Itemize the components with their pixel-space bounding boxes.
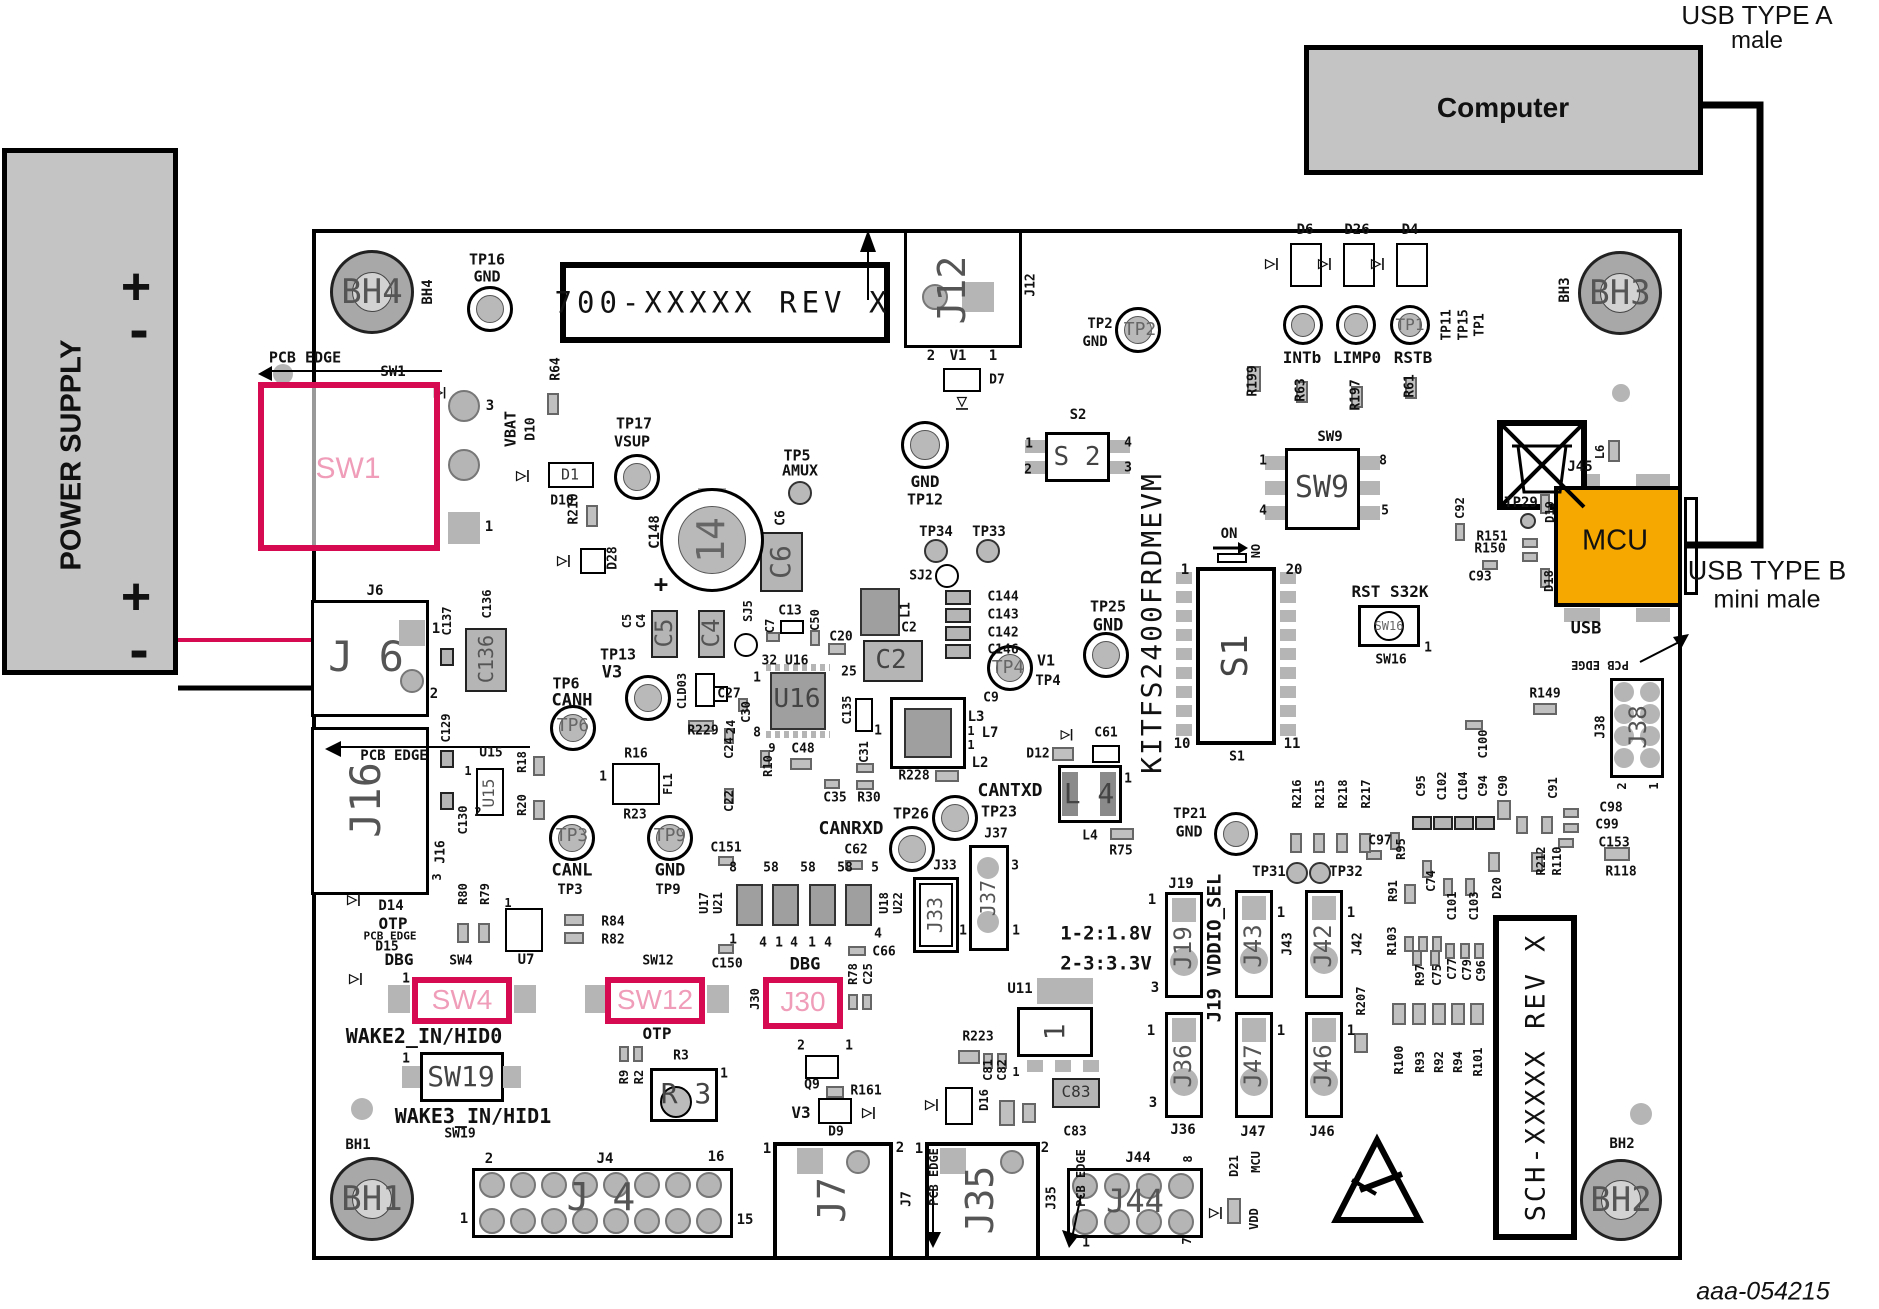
silkscreen-label: 1 (775, 937, 783, 950)
silkscreen-label: D10 (525, 417, 538, 440)
on-arrow (1238, 542, 1248, 554)
line (1640, 640, 1683, 662)
silkscreen-label: TP25 (1090, 600, 1126, 615)
silkscreen-label: 1 (959, 925, 967, 938)
silkscreen-label: C2 (901, 622, 917, 635)
silkscreen-label: R212 (1535, 847, 1547, 876)
silkscreen-label: R217 (1360, 780, 1372, 809)
silkscreen-label: 8 (1182, 1155, 1194, 1162)
silkscreen-label: ON (1221, 527, 1238, 541)
silkscreen-label: 1 (1424, 642, 1432, 655)
silkscreen-label: ▷| (557, 554, 571, 567)
silkscreen-label: 1 (485, 520, 493, 534)
silkscreen-label: S 2 (1054, 444, 1101, 470)
sw12-highlight-box (605, 977, 705, 1024)
silkscreen-label: J44 (1106, 1185, 1164, 1217)
silkscreen-label: R161 (850, 1085, 881, 1098)
silkscreen-label: PCB EDGE (1571, 659, 1629, 671)
silkscreen-label: D28 (607, 546, 620, 569)
silkscreen-label: J36 (1171, 1044, 1195, 1087)
silkscreen-label: 9 (768, 742, 775, 754)
silkscreen-label: SW16 (1375, 654, 1406, 667)
silkscreen-label: 3 (1011, 860, 1019, 873)
silkscreen-label: C96 (1475, 960, 1487, 982)
silkscreen-label: 1 (753, 672, 761, 685)
silkscreen-label: R229 (687, 725, 718, 738)
silkscreen-label: RSTB (1394, 350, 1433, 366)
assembly-number: 700-XXXXX REV X (555, 289, 892, 318)
silkscreen-label: PCB EDGE (269, 351, 341, 366)
silkscreen-label: 4 (790, 937, 798, 950)
silkscreen-label: J46 (1309, 1125, 1334, 1139)
silkscreen-label: 1 (432, 622, 440, 636)
silkscreen-label: TP6 (557, 717, 590, 735)
silkscreen-label: C100 (1477, 730, 1489, 759)
silkscreen-label: D6 (1297, 223, 1314, 237)
silkscreen-label: R150 (1474, 543, 1505, 556)
silkscreen-label: 1 (599, 771, 607, 784)
silkscreen-label: J6 (367, 584, 384, 598)
silkscreen-label: TP15 (1458, 309, 1471, 340)
silkscreen-label: L2 (972, 756, 989, 770)
sw4-highlight-box (412, 977, 512, 1024)
silkscreen-label: 1 (1124, 773, 1132, 786)
silkscreen-label: ▷| (516, 469, 530, 482)
silkscreen-label: 8 (753, 727, 761, 740)
mcu-label: MCU (1582, 527, 1648, 556)
silkscreen-label: C94 (1477, 775, 1489, 797)
usb-type-b-label: USB TYPE B (1688, 558, 1847, 585)
silkscreen-label: 1 (460, 1212, 468, 1226)
silkscreen-label: TP1 (1474, 313, 1487, 336)
board-name: KITFS2400FRDMEVM (1138, 472, 1166, 774)
silkscreen-label: R 3 (661, 1080, 712, 1108)
silkscreen-label: TP21 (1173, 807, 1207, 821)
silkscreen-label: J16 (345, 762, 387, 838)
silkscreen-label: TP6 (552, 677, 579, 692)
silkscreen-label: R228 (898, 770, 929, 783)
silkscreen-label: PCB EDGE (360, 749, 427, 763)
silkscreen-label: J45 (1567, 460, 1592, 474)
silkscreen-label: TP3 (556, 827, 589, 845)
silkscreen-label: TP29 (1504, 496, 1538, 510)
silkscreen-label: D14 (378, 899, 403, 913)
silkscreen-label: AMUX (782, 464, 818, 479)
silkscreen-label: VBAT (504, 411, 519, 447)
silkscreen-label: C6 (767, 545, 795, 579)
silkscreen-label: D16 (978, 1089, 990, 1111)
silkscreen-label: R215 (1314, 780, 1326, 809)
silkscreen-label: 1 (1259, 455, 1267, 468)
silkscreen-label: J37 (984, 828, 1007, 841)
silkscreen-label: C13 (778, 605, 801, 618)
silkscreen-label: R80 (457, 883, 469, 905)
silkscreen-label: 10 (1174, 737, 1191, 751)
silkscreen-label: 1 (1082, 1237, 1090, 1250)
silkscreen-label: R94 (1452, 1051, 1464, 1073)
silkscreen-label: TP12 (907, 493, 943, 508)
schematic-number: SCH-XXXXX REV X (1523, 933, 1550, 1222)
silkscreen-label: 11 (1284, 737, 1301, 751)
silkscreen-label: TP33 (972, 525, 1006, 539)
silkscreen-label: SW1 (380, 365, 405, 379)
silkscreen-label: VDD (1248, 1208, 1260, 1230)
silkscreen-label: TP1 (1396, 317, 1425, 333)
silkscreen-label: CANL (552, 863, 593, 880)
silkscreen-label: 1 (1277, 1024, 1285, 1038)
psu-minus-bottom: - (129, 621, 148, 679)
silkscreen-label: L4 (1082, 830, 1098, 843)
silkscreen-label: TP2 (1124, 321, 1157, 339)
silkscreen-label: R118 (1605, 866, 1636, 879)
silkscreen-label: INTb (1283, 350, 1322, 366)
silkscreen-label: 1 (1181, 563, 1189, 577)
silkscreen-label: 1 (1148, 893, 1156, 907)
j30-highlight-box (763, 977, 843, 1029)
silkscreen-label: 24 (725, 720, 737, 734)
silkscreen-label: C99 (1595, 819, 1618, 832)
silkscreen-label: 7 (1181, 1237, 1193, 1244)
silkscreen-label: J12 (1025, 273, 1038, 296)
silkscreen-label: 3 (1124, 462, 1132, 475)
silkscreen-label: Q9 (804, 1079, 820, 1092)
silkscreen-label: TP9 (654, 827, 687, 845)
silkscreen-label: R91 (1387, 880, 1399, 902)
silkscreen-label: 1 (1041, 1024, 1069, 1041)
silkscreen-label: 58 (837, 862, 853, 875)
silkscreen-label: J7 (901, 1191, 914, 1207)
silkscreen-label: J4 (597, 1152, 614, 1166)
silkscreen-label: C6 (775, 510, 788, 526)
silkscreen-label: U11 (1007, 982, 1032, 996)
silkscreen-label: C62 (844, 844, 867, 857)
silkscreen-label: R75 (1109, 845, 1132, 858)
silkscreen-label: 1 (763, 1142, 771, 1156)
silkscreen-label: C75 (1431, 964, 1443, 986)
silkscreen-label: 58 (763, 862, 779, 875)
silkscreen-label: S1 (1218, 634, 1254, 677)
usb-type-a-label: USB TYPE A (1681, 2, 1832, 28)
silkscreen-label: C74 (1425, 870, 1437, 892)
silkscreen-label: J33 (925, 897, 945, 933)
silkscreen-label: J30 (749, 988, 761, 1010)
silkscreen-label: CANH (552, 693, 593, 710)
silkscreen-label: D26 (1344, 223, 1369, 237)
silkscreen-label: R97 (1414, 964, 1426, 986)
silkscreen-label: U15 (479, 747, 502, 760)
silkscreen-label: 4 (824, 937, 832, 950)
silkscreen-label: S1 (1229, 751, 1245, 764)
silkscreen-label: SW9 (1295, 473, 1349, 503)
silkscreen-label: U7 (518, 953, 535, 967)
silkscreen-label: R197 (1350, 379, 1363, 410)
silkscreen-label: OTP (643, 1026, 672, 1042)
silkscreen-label: C20 (829, 631, 852, 644)
silkscreen-label: TP4 (992, 659, 1025, 677)
silkscreen-label: 1 (874, 725, 882, 738)
silkscreen-label: C35 (823, 792, 846, 805)
silkscreen-label: C130 (457, 806, 469, 835)
silkscreen-label: R23 (623, 809, 646, 822)
silkscreen-label: CLD03 (676, 673, 688, 709)
silkscreen-label: R84 (601, 916, 624, 929)
silkscreen-label: V3 (602, 665, 622, 682)
silkscreen-label: TP2 (1087, 317, 1112, 331)
silkscreen-label: C50 (809, 609, 821, 631)
silkscreen-label: D12 (1026, 748, 1049, 761)
silkscreen-label: C30 (740, 701, 752, 723)
silkscreen-label: USB (1571, 621, 1602, 638)
silkscreen-label: 16 (708, 1150, 725, 1164)
silkscreen-label: C81 (982, 1059, 994, 1081)
silkscreen-label: C136 (481, 590, 493, 619)
silkscreen-label: 2-3:3.3V (1060, 955, 1152, 974)
silkscreen-label: BH3 (1558, 277, 1572, 302)
silkscreen-label: J16 (435, 840, 448, 863)
silkscreen-label: R16 (624, 748, 647, 761)
silkscreen-label: J35 (1046, 1186, 1059, 1209)
silkscreen-label: C77 (1446, 958, 1458, 980)
silkscreen-label: WAKE2_IN/HID0 (346, 1026, 503, 1046)
usb-a-cable (1686, 105, 1760, 545)
silkscreen-label: TP34 (919, 525, 953, 539)
silkscreen-label: GND (655, 863, 686, 880)
silkscreen-label: FL1 (662, 773, 674, 795)
silkscreen-label: C61 (1094, 727, 1117, 740)
silkscreen-label: C4 (699, 619, 723, 648)
silkscreen-label: C27 (717, 688, 740, 701)
silkscreen-label: LIMP0 (1333, 350, 1381, 366)
silkscreen-label: C92 (1454, 497, 1466, 519)
silkscreen-label: R2 (633, 1070, 645, 1084)
silkscreen-label: DBG (385, 952, 414, 968)
sw1-highlight-box (258, 382, 440, 551)
silkscreen-label: C48 (791, 743, 814, 756)
silkscreen-label: V3 (791, 1105, 810, 1121)
silkscreen-label: C90 (1497, 775, 1509, 797)
silkscreen-label: C137 (441, 607, 453, 636)
silkscreen-label: J47 (1241, 1044, 1265, 1087)
silkscreen-label: CANRXD (818, 820, 883, 838)
line (1518, 446, 1566, 492)
silkscreen-label: R9 (618, 1070, 630, 1084)
silkscreen-label: R103 (1386, 927, 1398, 956)
silkscreen-label: TP4 (1035, 674, 1060, 688)
silkscreen-label: R218 (1337, 780, 1349, 809)
silkscreen-label: L7 (982, 726, 999, 740)
silkscreen-label: J33 (933, 860, 956, 873)
silkscreen-label: C4 (635, 614, 647, 628)
silkscreen-label: L6 (1594, 445, 1606, 459)
silkscreen-label: J36 (1170, 1123, 1195, 1137)
silkscreen-label: 2 (1616, 782, 1628, 789)
psu-plus-bottom: + (121, 571, 151, 623)
silkscreen-label: 2 (485, 1152, 493, 1166)
silkscreen-label: 1 (1012, 925, 1020, 938)
silkscreen-label: 2 (474, 806, 481, 818)
silkscreen-label: 1 (729, 934, 737, 947)
silkscreen-label: TP26 (893, 807, 929, 822)
silkscreen-label: C151 (710, 842, 741, 855)
silkscreen-label: C143 (987, 609, 1018, 622)
silkscreen-label: R199 (1247, 365, 1260, 396)
silkscreen-label: J19 VDDIO_SEL (1206, 874, 1225, 1023)
silkscreen-label: ▷| (957, 397, 970, 411)
silkscreen-label: MCU (1250, 1151, 1262, 1173)
silkscreen-label: C5 (652, 619, 676, 648)
silkscreen-label: GND (1093, 618, 1124, 635)
silkscreen-label: 1 (402, 973, 410, 986)
silkscreen-label: 4 (1124, 437, 1132, 450)
silkscreen-label: R210 (568, 493, 581, 524)
silkscreen-label: TP9 (655, 883, 680, 897)
esd-warning-triangle (1336, 1140, 1419, 1220)
silkscreen-label: ▷| (1371, 257, 1385, 270)
silkscreen-label: CANTXD (977, 782, 1042, 800)
silkscreen-label: SW9 (1317, 430, 1342, 444)
silkscreen-label: ▷| (862, 1106, 876, 1119)
silkscreen-label: R101 (1472, 1048, 1484, 1077)
silkscreen-label: J12 (933, 256, 971, 325)
silkscreen-label: C91 (1547, 777, 1559, 799)
silkscreen-label: C135 (841, 696, 853, 725)
silkscreen-label: 25 (841, 666, 857, 679)
silkscreen-label: + (654, 572, 668, 596)
silkscreen-label: 1 (808, 937, 816, 950)
silkscreen-label: TP3 (557, 883, 582, 897)
silkscreen-label: U17 (698, 892, 710, 914)
silkscreen-label: R63 (1295, 378, 1308, 401)
silkscreen-label: 3 (1149, 1096, 1157, 1110)
silkscreen-label: L3 (968, 710, 985, 724)
silkscreen-label: 1 (1147, 1024, 1155, 1038)
silkscreen-label: 1 (504, 897, 511, 909)
silkscreen-label: 1 (1012, 1066, 1019, 1078)
silkscreen-label: 1 (464, 765, 471, 777)
silkscreen-label: R79 (479, 883, 491, 905)
silkscreen-label: SW19 (444, 1128, 475, 1141)
silkscreen-label: J19 (1168, 877, 1193, 891)
silkscreen-label: TP11 (1441, 309, 1454, 340)
silkscreen-label: D18 (1543, 570, 1555, 592)
silkscreen-label: 32 U16 (762, 655, 809, 668)
pcb-edge-arrow-mcu (1673, 634, 1689, 649)
silkscreen-label: C129 (440, 714, 452, 743)
silkscreen-label: J38 (1626, 705, 1650, 748)
silkscreen-label: C5 (621, 614, 633, 628)
silkscreen-label: R223 (962, 1031, 993, 1044)
silkscreen-label: U18 (878, 892, 890, 914)
silkscreen-label: BH2 (1590, 1183, 1651, 1217)
silkscreen-label: 2 (430, 687, 438, 701)
silkscreen-label: R20 (516, 794, 528, 816)
silkscreen-label: J42 (1311, 924, 1335, 967)
silkscreen-label: 14 (692, 517, 730, 563)
silkscreen-label: 3 (431, 873, 443, 880)
pcb-edge-arrow-j16 (325, 741, 341, 757)
silkscreen-label: C31 (858, 741, 870, 763)
silkscreen-label: 1 (720, 1068, 728, 1081)
silkscreen-label: R207 (1355, 987, 1367, 1016)
silkscreen-label: 8 (1379, 455, 1387, 468)
silkscreen-label: WAKE3_IN/HID1 (395, 1106, 552, 1126)
silkscreen-label: GND (1175, 825, 1202, 840)
silkscreen-label: C9 (983, 692, 999, 705)
silkscreen-label: 15 (737, 1213, 754, 1227)
silkscreen-label: 3 (486, 399, 494, 413)
pcb-edge-arrow-j44 (1062, 1230, 1079, 1248)
silkscreen-label: J43 (1282, 932, 1295, 955)
silkscreen-label: R92 (1433, 1051, 1445, 1073)
silkscreen-label: U15 (481, 779, 497, 808)
silkscreen-label: GND (911, 474, 940, 490)
silkscreen-label: J 6 (328, 636, 404, 678)
silkscreen-label: C95 (1415, 775, 1427, 797)
silkscreen-label: 2 (1041, 1141, 1049, 1155)
silkscreen-label: BH1 (345, 1138, 370, 1152)
silkscreen-label: ▷| (925, 1098, 939, 1111)
silkscreen-label: L1 (900, 602, 913, 618)
silkscreen-label: C136 (476, 635, 496, 683)
silkscreen-label: 1 (967, 739, 974, 751)
silkscreen-label: C144 (987, 591, 1018, 604)
silkscreen-label: 4 (759, 937, 767, 950)
silkscreen-label: C102 (1436, 772, 1448, 801)
silkscreen-label: D21 (1228, 1155, 1240, 1177)
silkscreen-label: SW4 (449, 955, 472, 968)
silkscreen-label: BH4 (341, 275, 402, 309)
silkscreen-label: SJ5 (742, 600, 754, 622)
silkscreen-label: J47 (1240, 1125, 1265, 1139)
silkscreen-label: TP13 (600, 648, 636, 663)
silkscreen-label: V1 (950, 349, 967, 363)
pcb-edge-arrow-topleft (258, 366, 272, 381)
silkscreen-label: 3 (1151, 981, 1159, 995)
power-supply-label: POWER SUPPLY (58, 340, 87, 571)
silkscreen-label: 5 (871, 862, 879, 875)
computer-label: Computer (1437, 94, 1569, 122)
silkscreen-label: J19 (1171, 926, 1195, 969)
silkscreen-label: V1 (1037, 654, 1055, 669)
silkscreen-label: 8 (729, 862, 737, 875)
silkscreen-label: 1 (915, 1142, 923, 1156)
usb-type-a-male-label: male (1731, 29, 1783, 53)
silkscreen-label: J42 (1352, 932, 1365, 955)
silkscreen-label: J7 (813, 1177, 851, 1223)
silkscreen-label: 1-2:1.8V (1060, 925, 1152, 944)
silkscreen-label: R30 (857, 792, 880, 805)
silkscreen-label: R82 (601, 934, 624, 947)
silkscreen-label: 4 (874, 928, 882, 941)
silkscreen-label: R149 (1529, 688, 1560, 701)
silkscreen-label: D9 (828, 1126, 844, 1139)
silkscreen-label: GND (1082, 335, 1107, 349)
pcb-edge-arrow-j35 (925, 1232, 941, 1248)
silkscreen-label: SW12 (642, 955, 673, 968)
silkscreen-label: NO (1250, 544, 1262, 558)
silkscreen-label: BH1 (341, 1182, 402, 1216)
silkscreen-label: TP23 (981, 805, 1017, 820)
silkscreen-label: C22 (723, 790, 735, 812)
silkscreen-label: SJ2 (909, 570, 932, 583)
silkscreen-label: C82 (996, 1059, 1008, 1081)
silkscreen-label: L 4 (1064, 780, 1115, 808)
silkscreen-label: C79 (1461, 959, 1473, 981)
silkscreen-label: ▷| (1265, 257, 1279, 270)
silkscreen-label: PCB EDGE (928, 1148, 940, 1206)
psu-minus-top: - (129, 301, 148, 359)
silkscreen-label: TP32 (1329, 865, 1363, 879)
